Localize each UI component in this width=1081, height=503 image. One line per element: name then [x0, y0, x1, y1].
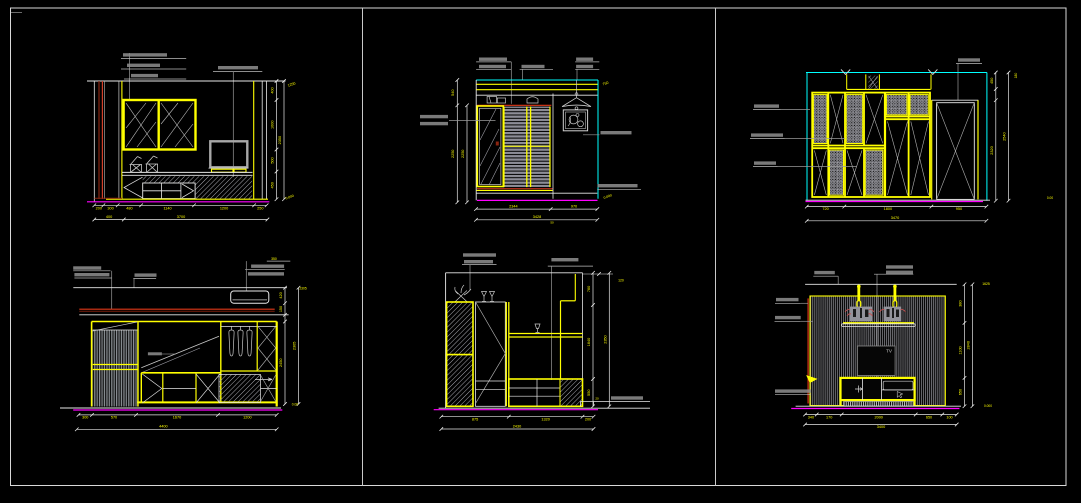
svg-text:2000: 2000 — [874, 415, 882, 419]
svg-text:400: 400 — [106, 215, 112, 219]
svg-text:570: 570 — [111, 416, 117, 420]
svg-text:300: 300 — [82, 416, 88, 420]
svg-text:1200: 1200 — [220, 206, 228, 210]
svg-text:100: 100 — [946, 415, 952, 419]
svg-text:340: 340 — [808, 415, 814, 419]
svg-text:650: 650 — [959, 389, 963, 395]
svg-text:0.00: 0.00 — [1047, 196, 1053, 200]
svg-text:2450: 2450 — [279, 359, 283, 367]
svg-text:3400: 3400 — [877, 425, 885, 429]
svg-text:1640: 1640 — [587, 338, 591, 346]
svg-text:2540: 2540 — [1003, 132, 1007, 140]
svg-text:200: 200 — [96, 206, 102, 210]
svg-text:3470: 3470 — [891, 216, 899, 220]
svg-text:650: 650 — [926, 415, 932, 419]
svg-text:400: 400 — [270, 87, 274, 93]
svg-text:480: 480 — [126, 206, 132, 210]
svg-text:200: 200 — [585, 417, 591, 421]
svg-text:875: 875 — [472, 417, 478, 421]
svg-text:3700: 3700 — [177, 215, 185, 219]
svg-text:1140: 1140 — [163, 206, 171, 210]
svg-text:2250: 2250 — [461, 150, 465, 158]
svg-text:1670: 1670 — [173, 416, 181, 420]
svg-text:760: 760 — [587, 286, 591, 292]
svg-text:3428: 3428 — [533, 215, 541, 219]
svg-text:4400: 4400 — [159, 425, 167, 429]
svg-text:170: 170 — [826, 415, 832, 419]
svg-text:550: 550 — [587, 389, 591, 395]
svg-text:120: 120 — [618, 279, 624, 283]
svg-text:420: 420 — [279, 292, 283, 298]
svg-text:1625: 1625 — [982, 282, 990, 286]
svg-text:2350: 2350 — [603, 335, 607, 343]
svg-text:540: 540 — [451, 89, 455, 95]
svg-text:380: 380 — [959, 300, 963, 306]
svg-text:0.00: 0.00 — [292, 403, 299, 407]
svg-text:180: 180 — [1014, 73, 1018, 79]
svg-text:2840: 2840 — [967, 341, 971, 349]
svg-text:720: 720 — [822, 207, 828, 211]
svg-text:2305: 2305 — [299, 286, 307, 290]
svg-text:970: 970 — [571, 205, 577, 209]
svg-text:150: 150 — [279, 306, 283, 312]
svg-text:2250: 2250 — [451, 150, 455, 158]
svg-text:0.000: 0.000 — [984, 404, 992, 408]
svg-text:450: 450 — [270, 182, 274, 188]
svg-text:350: 350 — [271, 257, 277, 261]
svg-text:50: 50 — [550, 220, 554, 224]
svg-text:450: 450 — [990, 78, 994, 84]
svg-text:2430: 2430 — [513, 424, 521, 428]
svg-text:2305: 2305 — [293, 342, 297, 350]
svg-text:1000: 1000 — [270, 121, 274, 129]
svg-text:2320: 2320 — [990, 146, 994, 154]
svg-text:1800: 1800 — [884, 207, 892, 211]
svg-text:500: 500 — [270, 157, 274, 163]
svg-text:TV: TV — [886, 348, 893, 353]
svg-text:300: 300 — [107, 206, 113, 210]
svg-text:250: 250 — [257, 206, 263, 210]
svg-text:1200: 1200 — [243, 416, 251, 420]
svg-text:1100: 1100 — [959, 346, 963, 354]
svg-text:2350: 2350 — [278, 136, 282, 144]
svg-text:950: 950 — [956, 207, 962, 211]
svg-text:1320: 1320 — [541, 417, 549, 421]
svg-text:20: 20 — [595, 397, 599, 401]
svg-text:2344: 2344 — [509, 205, 517, 209]
